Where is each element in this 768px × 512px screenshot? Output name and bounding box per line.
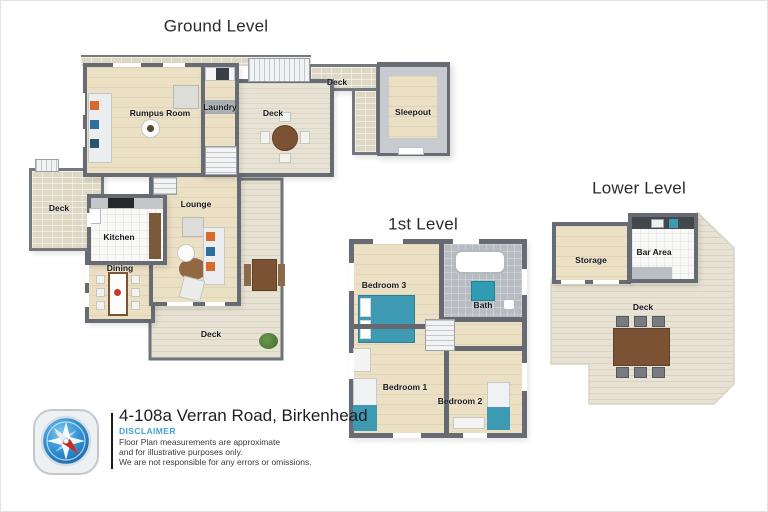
- deck-chair-west: [260, 131, 270, 144]
- desk-bedroom2: [453, 417, 485, 429]
- table-flowers: [114, 289, 121, 296]
- sofa-pillow-navy: [90, 139, 99, 148]
- bar-appliance: [669, 219, 678, 228]
- room-label-bedroom2: Bedroom 2: [438, 397, 482, 406]
- interior-wall: [444, 346, 524, 351]
- room-label-bedroom1: Bedroom 1: [383, 383, 427, 392]
- window: [85, 293, 89, 307]
- window: [522, 363, 527, 391]
- dining-chair: [96, 275, 105, 284]
- room-label-deck-lower: Deck: [633, 303, 653, 312]
- room-label-sleepout: Sleepout: [395, 108, 431, 117]
- window: [81, 93, 85, 115]
- hall-stairs: [205, 146, 237, 175]
- lounge-round-table: [177, 244, 195, 262]
- lounge-pillow-blue: [206, 247, 215, 256]
- window: [85, 265, 89, 283]
- window: [373, 239, 403, 244]
- window: [205, 302, 225, 306]
- window: [393, 433, 421, 438]
- ground-level-title: Ground Level: [164, 18, 268, 35]
- deck-bench: [278, 264, 285, 286]
- deck-chair-east: [300, 131, 310, 144]
- window: [163, 63, 185, 67]
- deck-chair: [634, 316, 647, 327]
- window: [453, 239, 479, 244]
- lower-deck-table: [613, 328, 670, 366]
- room-label-deck-main: Deck: [263, 109, 283, 118]
- property-address: 4-108a Verran Road, Birkenhead: [119, 406, 368, 426]
- room-label-lounge: Lounge: [181, 200, 212, 209]
- dining-chair: [131, 275, 140, 284]
- lounge-pillow-orange: [206, 232, 215, 241]
- dining-chair: [131, 288, 140, 297]
- window: [167, 302, 193, 306]
- room-label-bath: Bath: [474, 301, 493, 310]
- potted-plant: [259, 333, 278, 349]
- dining-chair: [131, 301, 140, 310]
- washing-machine: [216, 68, 229, 80]
- first-level-stairs: [425, 319, 455, 351]
- bar-low-counter: [632, 267, 672, 279]
- window: [113, 63, 141, 67]
- bed-pillow: [360, 320, 371, 339]
- window: [463, 433, 487, 438]
- compass-logo-icon: [31, 407, 101, 477]
- room-label-bar-area: Bar Area: [636, 248, 671, 257]
- deck-chair: [634, 367, 647, 378]
- disclaimer-line-3: We are not responsible for any errors or…: [119, 457, 312, 467]
- walkway-deck-vertical: [352, 88, 379, 155]
- footer-divider: [111, 413, 113, 469]
- room-label-bedroom3: Bedroom 3: [362, 281, 406, 290]
- desk-bedroom1: [353, 348, 371, 372]
- dining-chair: [96, 301, 105, 310]
- window: [593, 280, 619, 284]
- room-label-kitchen: Kitchen: [103, 233, 134, 242]
- room-label-deck-bottom: Deck: [201, 330, 221, 339]
- deck-bench: [244, 264, 251, 286]
- deck-chair: [652, 367, 665, 378]
- outdoor-round-table: [272, 125, 298, 151]
- window: [349, 353, 354, 379]
- deck-square-table: [252, 259, 277, 291]
- room-label-deck-walkway: Deck: [327, 78, 347, 87]
- lounge-stairs: [153, 177, 177, 195]
- window: [87, 213, 91, 227]
- first-level-title: 1st Level: [388, 216, 458, 233]
- lounge-pillow-orange2: [206, 262, 215, 271]
- room-label-laundry: Laundry: [203, 103, 237, 112]
- sofa-pillow-blue: [90, 120, 99, 129]
- lower-level-title: Lower Level: [592, 180, 686, 197]
- floor-plan-canvas: Ground Level: [0, 0, 768, 512]
- bathtub: [454, 250, 506, 274]
- deck-chair-south: [279, 153, 291, 163]
- deck-chair: [616, 316, 629, 327]
- window: [349, 263, 354, 291]
- deck-chair: [616, 367, 629, 378]
- left-deck-stairs: [35, 159, 59, 172]
- room-label-dining: Dining: [107, 264, 133, 273]
- fridge-pantry: [149, 213, 161, 259]
- room-label-storage: Storage: [575, 256, 607, 265]
- bed-bedroom2-cover: [487, 407, 510, 430]
- bar-sink: [651, 219, 664, 228]
- sofa-pillow-orange: [90, 101, 99, 110]
- sleepout-door: [398, 147, 424, 155]
- interior-wall: [439, 244, 444, 324]
- toilet: [503, 299, 515, 310]
- stove: [108, 198, 134, 208]
- deck-chair: [652, 316, 665, 327]
- window: [81, 129, 85, 147]
- disclaimer-line-1: Floor Plan measurements are approximate: [119, 437, 312, 447]
- room-label-rumpus: Rumpus Room: [130, 109, 190, 118]
- bed-pillow: [360, 298, 371, 317]
- lounge-armchair: [182, 217, 204, 237]
- window: [522, 269, 527, 295]
- storage-room: [552, 222, 631, 284]
- interior-wall: [444, 346, 449, 433]
- disclaimer-line-2: and for illustrative purposes only.: [119, 447, 312, 457]
- rumpus-armchair: [173, 85, 199, 109]
- disclaimer-heading: DISCLAIMER: [119, 427, 176, 436]
- rumpus-table-bowl: [147, 125, 154, 132]
- room-label-deck-left: Deck: [49, 204, 69, 213]
- window: [561, 280, 585, 284]
- deck-top-stairs: [248, 58, 310, 82]
- disclaimer-text: Floor Plan measurements are approximate …: [119, 437, 312, 467]
- shower: [471, 281, 495, 301]
- dining-chair: [96, 288, 105, 297]
